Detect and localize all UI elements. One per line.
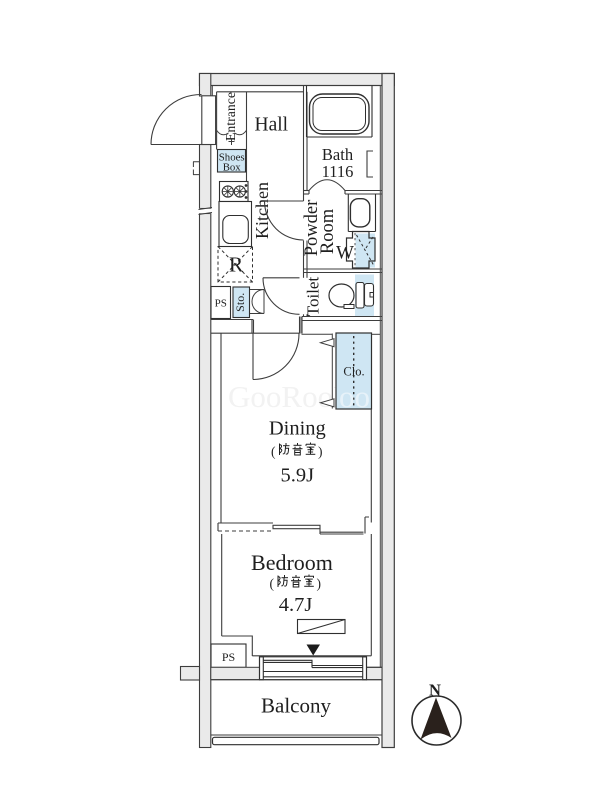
svg-text:1116: 1116: [322, 162, 354, 181]
svg-text:(: (: [271, 444, 276, 459]
svg-text:(: (: [270, 576, 275, 591]
svg-text:5.9J: 5.9J: [280, 465, 314, 487]
svg-text:PS: PS: [215, 298, 227, 310]
svg-text:Clo.: Clo.: [343, 365, 364, 379]
svg-text:Kitchen: Kitchen: [252, 182, 272, 239]
svg-text:): ): [317, 576, 322, 591]
svg-text:Hall: Hall: [255, 115, 289, 136]
svg-text:R: R: [229, 253, 244, 277]
svg-text:W: W: [336, 243, 354, 264]
svg-text:PS: PS: [222, 650, 235, 664]
svg-text:oo: oo: [339, 379, 370, 414]
svg-text:): ): [318, 444, 323, 459]
svg-text:Bedroom: Bedroom: [251, 550, 333, 575]
svg-text:Sto.: Sto.: [233, 293, 247, 312]
svg-text:Box: Box: [223, 162, 242, 174]
svg-text:N: N: [429, 681, 441, 700]
svg-text:Toilet: Toilet: [303, 277, 322, 317]
svg-text:Dining: Dining: [269, 418, 326, 440]
svg-text:4.7J: 4.7J: [279, 594, 313, 616]
svg-text:Balcony: Balcony: [261, 694, 331, 718]
